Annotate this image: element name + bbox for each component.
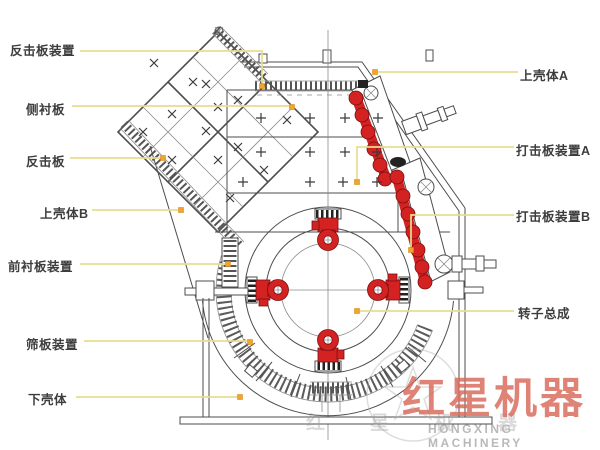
rotor-assembly-label-dot (355, 309, 360, 314)
blow-bar-assembly-b-label: 打击板装置B (516, 206, 591, 225)
impact-plate-label-dot (161, 156, 166, 161)
impact-plate-label: 反击板 (26, 151, 65, 170)
rotor-assembly-label: 转子总成 (518, 303, 570, 322)
plus-mark (238, 177, 248, 187)
screen-plate-assembly-label-dot (248, 340, 253, 345)
side-liner-label-dot (290, 105, 295, 110)
leader-lines-layer (70, 51, 518, 400)
side-liner-label: 侧衬板 (26, 99, 65, 118)
crusher-structure-diagram: 反击板装置侧衬板反击板上壳体B前衬板装置筛板装置下壳体上壳体A打击板装置A打击板… (0, 0, 600, 450)
plus-mark (305, 147, 315, 157)
cross-mark (234, 143, 242, 151)
lower-shell-label: 下壳体 (28, 389, 67, 408)
lower-shell-label-dot (238, 395, 243, 400)
cross-mark (202, 127, 210, 135)
cross-mark (168, 110, 176, 118)
screen-plate-assembly-label: 筛板装置 (26, 334, 78, 353)
cross-mark (202, 80, 210, 88)
impact-plate-assembly-label: 反击板装置 (10, 40, 75, 59)
impact-plate-assembly-label-dot (260, 84, 265, 89)
blow-bar-assembly-a-label: 打击板装置A (516, 140, 591, 159)
cross-mark (234, 96, 242, 104)
diagram-canvas (0, 0, 600, 450)
plus-mark (338, 177, 348, 187)
blow-bar-assembly-a-label-dot (355, 180, 360, 185)
cross-mark (214, 156, 222, 164)
cross-mark (189, 78, 197, 86)
upper-shell-a-label: 上壳体A (520, 65, 569, 84)
cross-mark (139, 128, 147, 136)
upper-shell-b-label: 上壳体B (40, 203, 89, 222)
plus-mark (305, 177, 315, 187)
upper-shell-b-label-dot (179, 208, 184, 213)
upper-shell-a-label-dot (373, 70, 378, 75)
plus-mark (256, 147, 266, 157)
cross-mark (150, 59, 158, 67)
plus-mark (340, 147, 350, 157)
cross-mark (283, 116, 291, 124)
cross-mark (260, 166, 268, 174)
front-liner-assembly-label-dot (226, 262, 231, 267)
plus-mark (340, 113, 350, 123)
blow-bar-assembly-b-label-dot (409, 248, 414, 253)
front-liner-assembly-label: 前衬板装置 (8, 256, 73, 275)
cross-mark (168, 156, 176, 164)
cross-mark (214, 103, 222, 111)
